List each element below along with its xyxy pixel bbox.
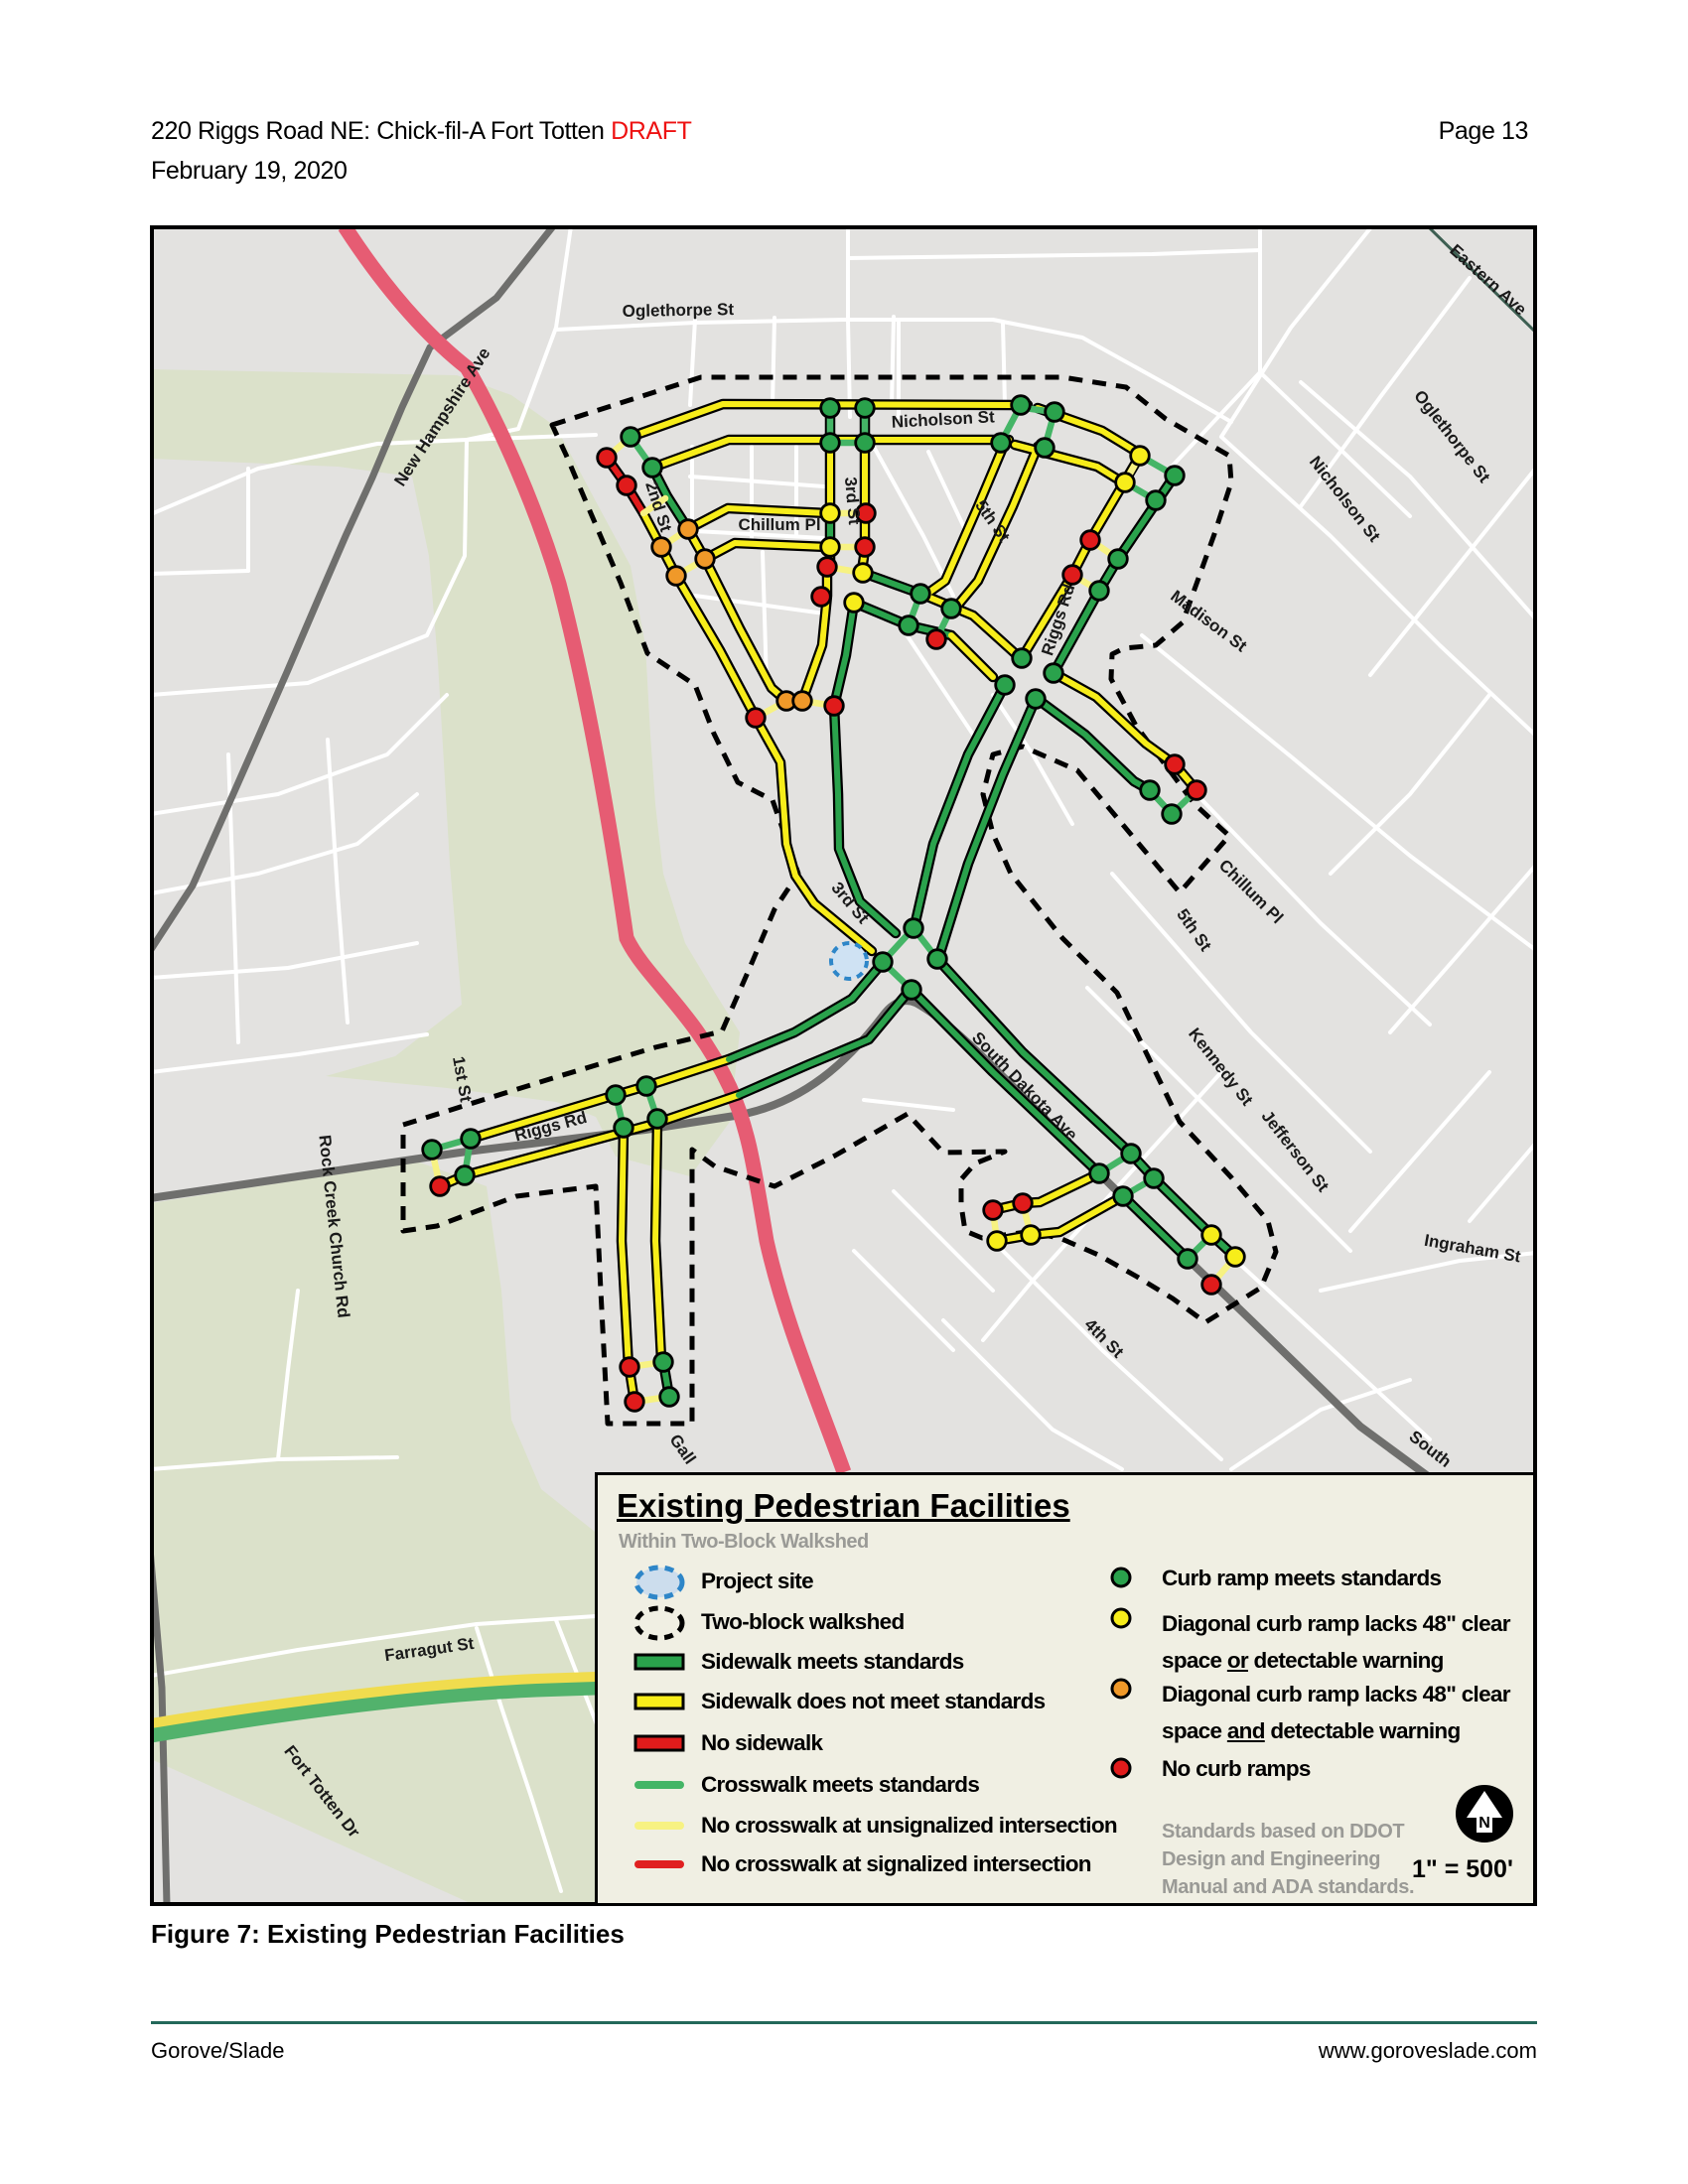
svg-text:N: N [1478, 1815, 1490, 1832]
svg-text:Oglethorpe St: Oglethorpe St [623, 300, 735, 321]
svg-text:Chillum Pl: Chillum Pl [738, 515, 820, 534]
